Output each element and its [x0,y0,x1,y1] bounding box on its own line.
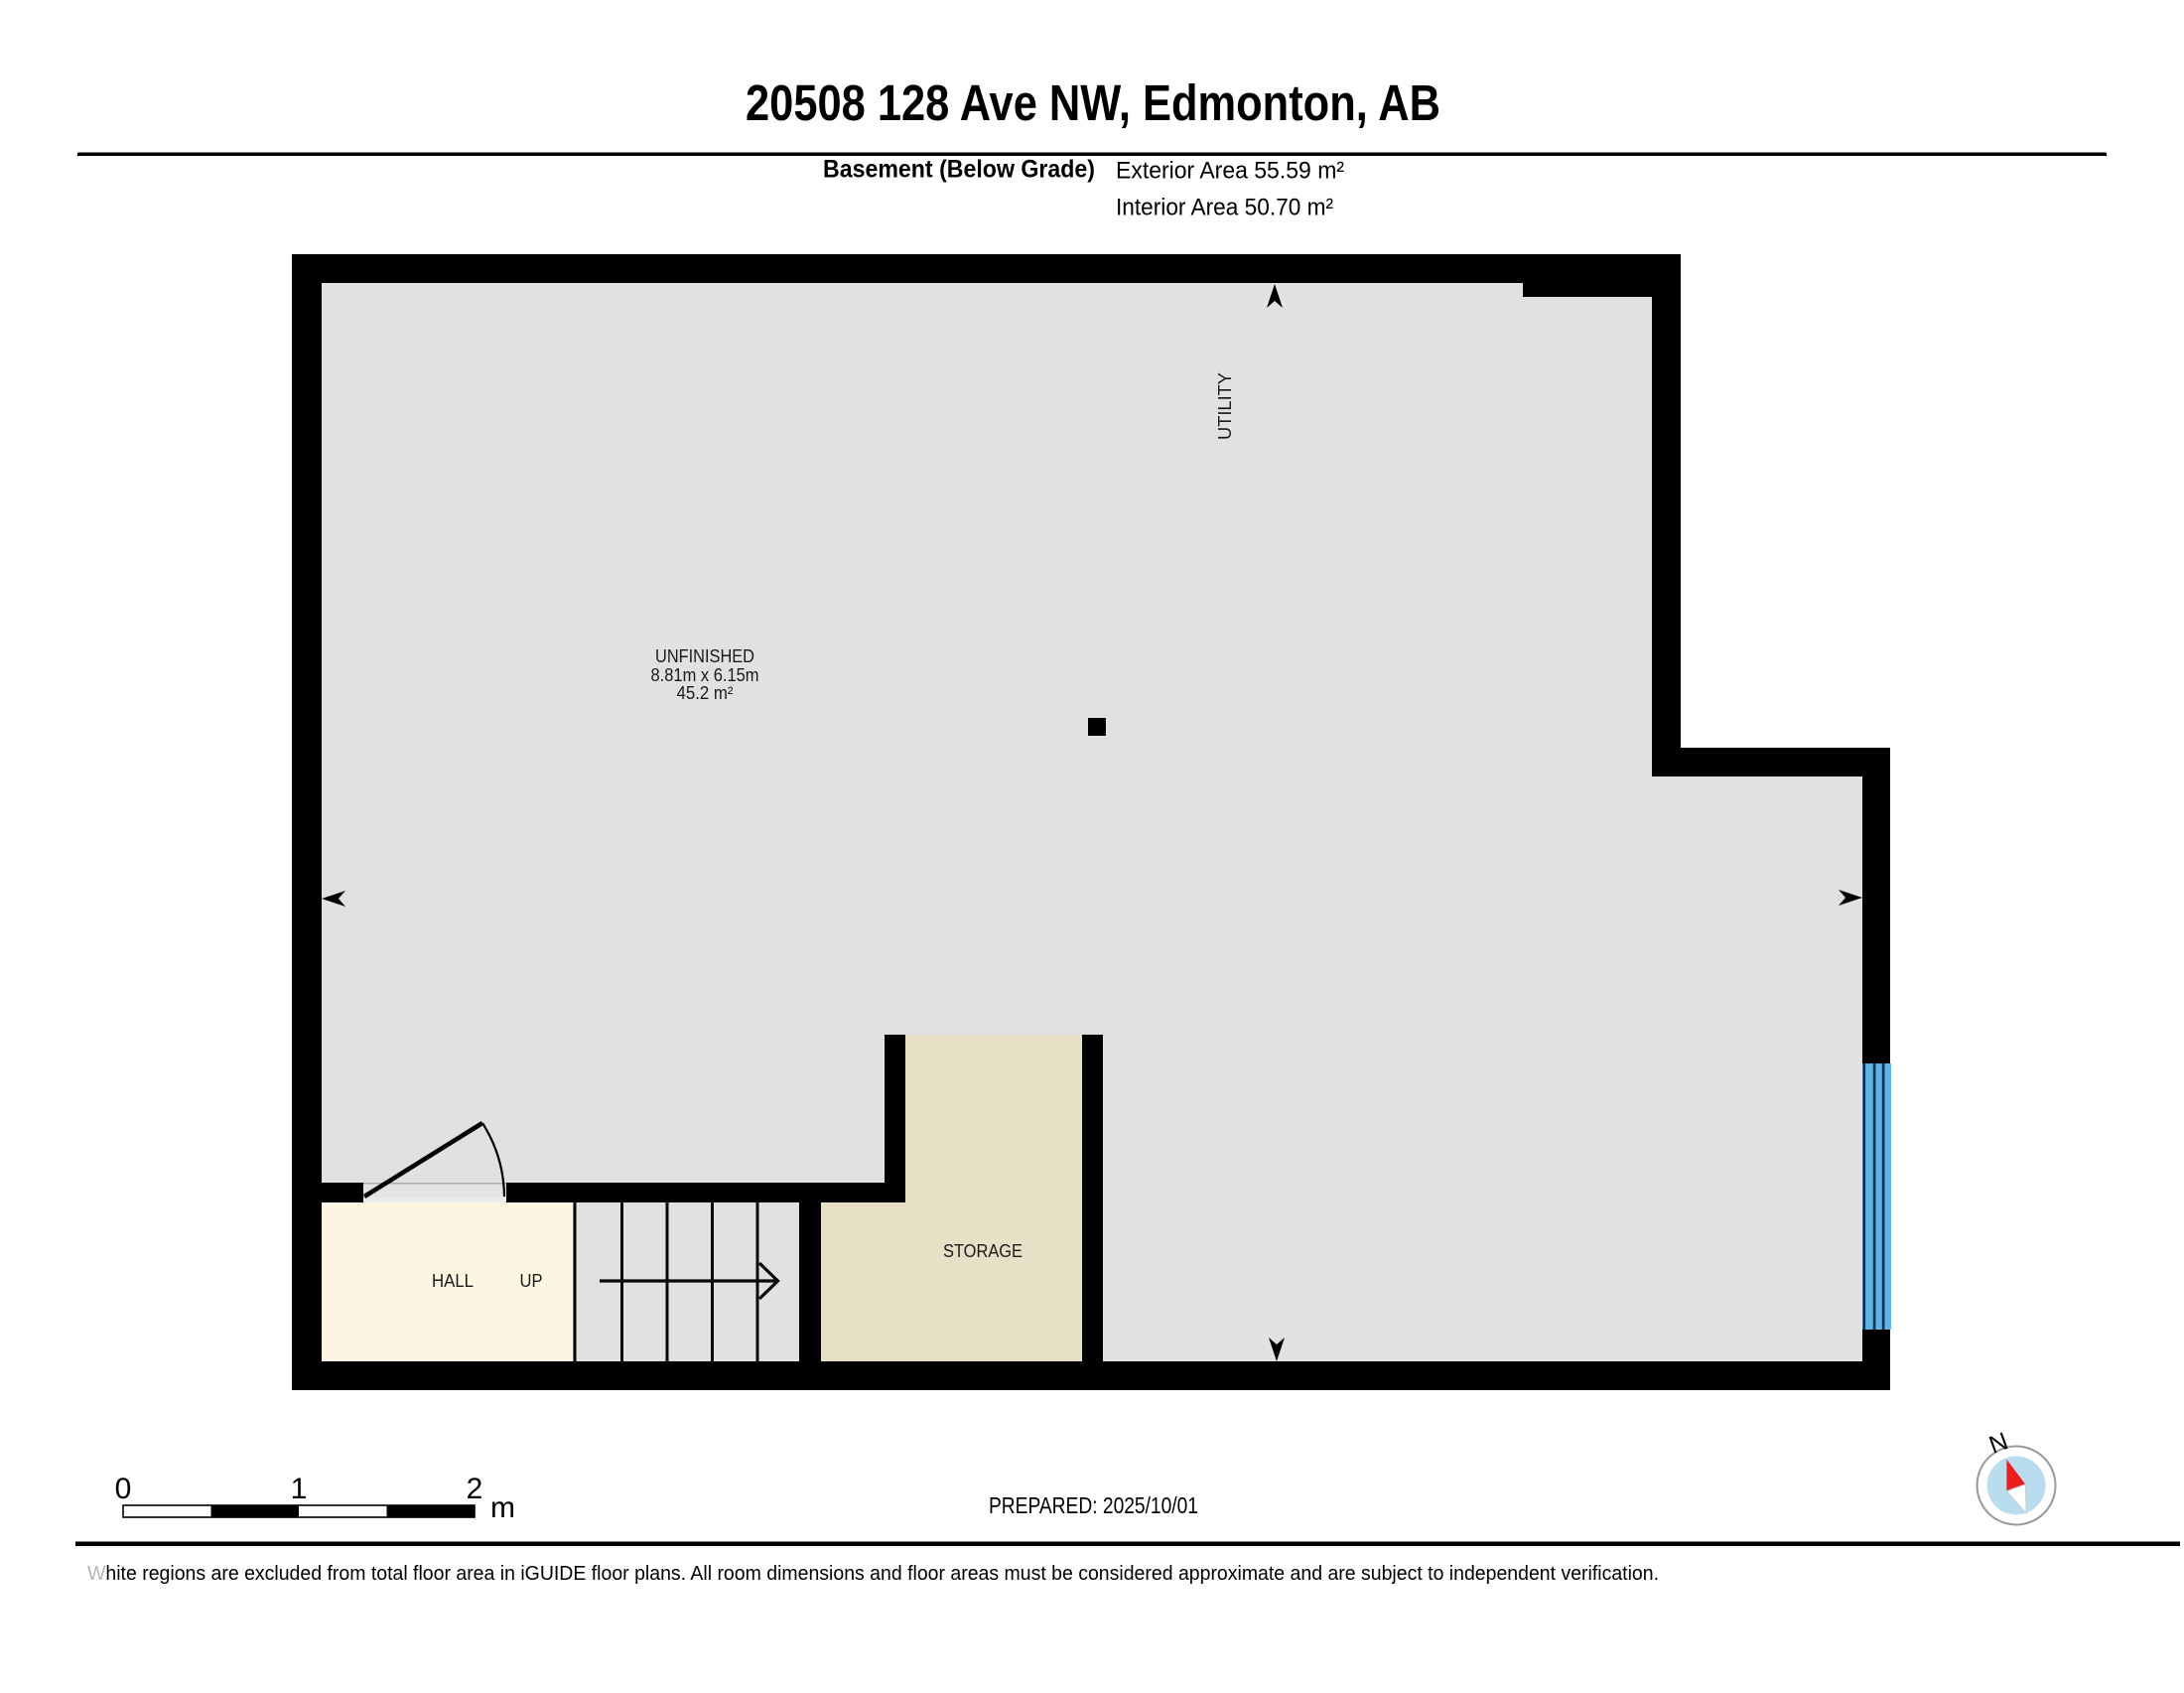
svg-text:UP: UP [520,1271,543,1291]
svg-text:UNFINISHED: UNFINISHED [655,646,754,666]
svg-text:2: 2 [467,1473,483,1505]
svg-text:PREPARED: 2025/10/01: PREPARED: 2025/10/01 [989,1492,1198,1518]
svg-text:45.2 m²: 45.2 m² [677,683,734,703]
svg-text:UTILITY: UTILITY [1215,372,1235,440]
svg-text:0: 0 [115,1473,132,1505]
svg-text:Exterior Area 55.59 m²: Exterior Area 55.59 m² [1116,158,1344,185]
svg-text:HALL: HALL [432,1271,474,1291]
svg-text:m: m [490,1491,515,1524]
svg-text:Interior Area 50.70 m²: Interior Area 50.70 m² [1116,195,1333,221]
svg-text:White regions are excluded fro: White regions are excluded from total fl… [87,1563,1659,1585]
svg-text:1: 1 [291,1473,308,1505]
svg-text:Basement (Below Grade): Basement (Below Grade) [823,156,1095,184]
svg-text:8.81m x 6.15m: 8.81m x 6.15m [651,665,759,685]
svg-text:20508 128 Ave NW, Edmonton, AB: 20508 128 Ave NW, Edmonton, AB [746,74,1440,131]
svg-text:STORAGE: STORAGE [943,1241,1023,1261]
